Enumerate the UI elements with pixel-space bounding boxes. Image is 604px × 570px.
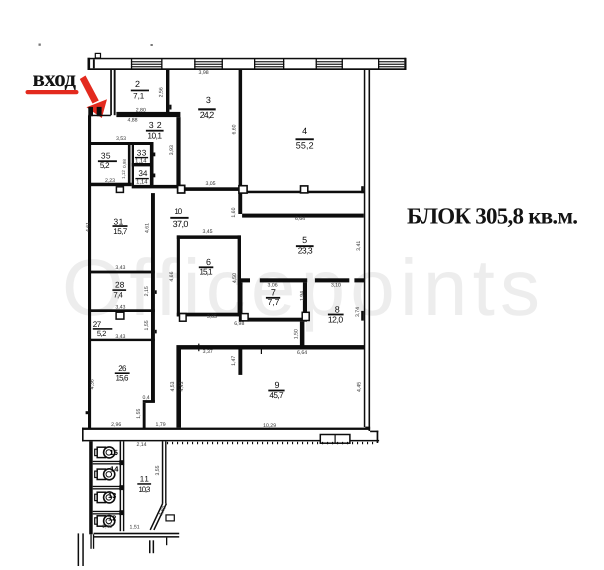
svg-text:7,7: 7,7 [268, 297, 280, 307]
svg-text:7: 7 [271, 287, 276, 297]
svg-text:6,64: 6,64 [297, 350, 307, 356]
svg-text:11: 11 [140, 474, 150, 483]
svg-text:45,7: 45,7 [269, 390, 284, 400]
svg-text:6,60: 6,60 [232, 124, 238, 134]
svg-text:0,98: 0,98 [122, 159, 127, 168]
svg-text:2,56: 2,56 [158, 87, 164, 97]
svg-text:7,4: 7,4 [113, 291, 123, 300]
svg-text:3,41: 3,41 [356, 241, 362, 251]
svg-text:24,2: 24,2 [200, 110, 215, 120]
svg-text:37,0: 37,0 [173, 219, 189, 229]
svg-text:3,98: 3,98 [199, 70, 209, 76]
svg-text:4,66: 4,66 [169, 271, 175, 281]
svg-text:БЛОК 305,8 кв.м.: БЛОК 305,8 кв.м. [407, 204, 578, 229]
svg-text:33: 33 [137, 148, 147, 157]
svg-text:2,14: 2,14 [136, 442, 146, 448]
svg-text:31: 31 [114, 217, 124, 227]
svg-text:3,43: 3,43 [115, 305, 125, 311]
svg-text:12,0: 12,0 [328, 315, 343, 325]
svg-text:34: 34 [138, 169, 147, 178]
svg-text:1,51: 1,51 [130, 524, 140, 530]
svg-text:3,10: 3,10 [331, 282, 341, 288]
svg-text:1,55: 1,55 [144, 320, 150, 330]
svg-text:2,96: 2,96 [111, 422, 121, 428]
svg-text:1,12: 1,12 [121, 170, 126, 179]
svg-text:10: 10 [174, 207, 182, 216]
svg-text:55,2: 55,2 [296, 141, 314, 151]
svg-text:15,6: 15,6 [116, 374, 129, 383]
svg-text:23,3: 23,3 [298, 246, 313, 256]
svg-text:1,60: 1,60 [231, 207, 237, 217]
svg-text:9: 9 [274, 380, 279, 390]
svg-text:10,29: 10,29 [263, 423, 276, 429]
svg-text:5,2: 5,2 [97, 329, 106, 338]
svg-text:1,50: 1,50 [293, 329, 299, 339]
svg-text:15,1: 15,1 [199, 267, 213, 277]
svg-text:3: 3 [206, 95, 211, 105]
svg-text:3,45: 3,45 [202, 229, 212, 235]
svg-text:6,98: 6,98 [234, 321, 244, 327]
svg-text:3,43: 3,43 [115, 265, 125, 271]
svg-text:4,36: 4,36 [89, 379, 95, 389]
svg-text:3,37: 3,37 [203, 349, 213, 355]
svg-text:4,61: 4,61 [85, 222, 91, 232]
svg-text:3,43: 3,43 [115, 334, 125, 340]
svg-text:26: 26 [118, 364, 127, 373]
svg-text:12: 12 [108, 514, 116, 523]
svg-text:4,61: 4,61 [145, 223, 151, 233]
svg-text:1,47: 1,47 [231, 356, 237, 366]
svg-text:15,7: 15,7 [113, 227, 128, 236]
svg-text:13: 13 [108, 491, 116, 500]
svg-text:1,40: 1,40 [102, 524, 112, 530]
svg-text:27: 27 [93, 320, 102, 329]
svg-text:4,88: 4,88 [127, 118, 137, 124]
svg-text:1,14: 1,14 [135, 159, 147, 165]
svg-text:4,53: 4,53 [170, 381, 176, 391]
svg-text:1,94: 1,94 [299, 291, 305, 301]
svg-text:1,55: 1,55 [136, 409, 142, 419]
svg-text:2,80: 2,80 [136, 107, 146, 113]
svg-text:3,53: 3,53 [116, 136, 126, 142]
svg-text:6,64: 6,64 [295, 216, 305, 222]
svg-text:2,15: 2,15 [144, 286, 150, 296]
svg-text:3,05: 3,05 [205, 181, 215, 187]
svg-text:28: 28 [115, 280, 125, 289]
svg-text:2: 2 [135, 79, 140, 89]
svg-text:5,2: 5,2 [100, 161, 110, 170]
svg-text:3,05: 3,05 [207, 314, 217, 320]
svg-text:35: 35 [101, 151, 111, 161]
svg-text:14: 14 [110, 465, 119, 474]
svg-text:1,79: 1,79 [156, 422, 166, 428]
svg-text:3,55: 3,55 [155, 465, 161, 475]
svg-text:32: 32 [149, 120, 162, 130]
svg-text:3,93: 3,93 [169, 145, 175, 155]
svg-text:1,14: 1,14 [136, 179, 148, 185]
svg-text:4,45: 4,45 [356, 382, 362, 392]
svg-text:3,06: 3,06 [268, 282, 278, 288]
svg-text:6: 6 [206, 257, 211, 267]
svg-text:3,74: 3,74 [355, 307, 361, 317]
svg-text:7,1: 7,1 [133, 91, 145, 100]
svg-text:4: 4 [302, 126, 307, 136]
svg-text:4,50: 4,50 [232, 273, 238, 283]
svg-text:вход: вход [33, 66, 77, 91]
svg-text:5: 5 [302, 235, 307, 245]
svg-text:10,1: 10,1 [147, 131, 162, 141]
svg-text:4,43: 4,43 [179, 381, 185, 391]
svg-text:2,23: 2,23 [105, 178, 115, 184]
svg-text:8: 8 [335, 304, 340, 314]
svg-text:0,4: 0,4 [142, 395, 149, 401]
svg-text:15: 15 [110, 448, 118, 457]
svg-text:10,3: 10,3 [139, 485, 151, 494]
